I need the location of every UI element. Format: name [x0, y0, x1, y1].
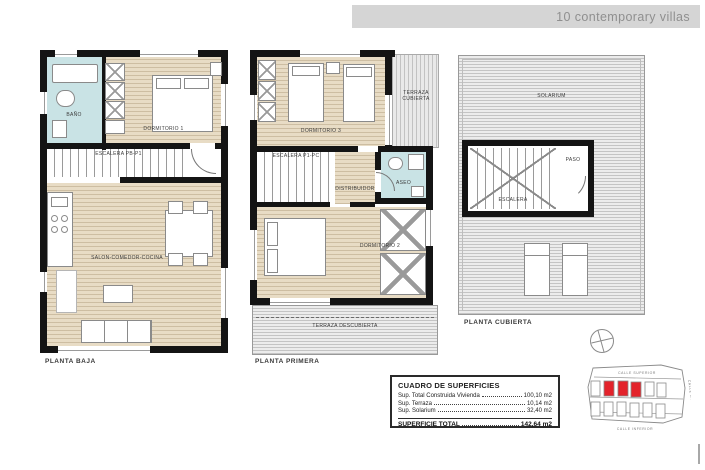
room-label-salon: SALON-COMEDOR-COCINA: [47, 255, 207, 261]
floor-plan-planta-primera: DORMITORIO 3 TERRAZA CUBIERTA ESCALERA P…: [250, 50, 440, 355]
street-label-right: CALLE LATERAL: [687, 380, 691, 415]
room-label-solarium: SOLARIUM: [458, 93, 645, 99]
wardrobe-symbol: [105, 63, 125, 81]
sink-symbol: [52, 120, 67, 138]
kitchen-island-symbol: [56, 270, 77, 313]
room-terraza-descubierta: [252, 305, 438, 355]
pillow-symbol: [346, 67, 372, 77]
wardrobe-symbol: [258, 81, 276, 101]
table-row: Sup. Solarium 32,40 m2: [398, 408, 552, 416]
table-row: Sup. Total Construida Vivienda 100,10 m2: [398, 393, 552, 401]
room-escalera-p1-pc: [257, 152, 335, 202]
window: [221, 84, 228, 126]
dot-leader: [438, 411, 525, 412]
toilet-symbol: [56, 90, 75, 107]
row-label: Sup. Solarium: [398, 408, 436, 416]
plan-label-planta-cubierta: PLANTA CUBIERTA: [464, 319, 532, 326]
row-value: 100,10 m2: [524, 393, 552, 401]
room-label-dormitorio-3: DORMITORIO 3: [257, 128, 385, 134]
window: [40, 272, 47, 292]
surface-table: CUADRO DE SUPERFICIES Sup. Total Constru…: [390, 375, 560, 428]
room-label-terraza-cubierta: TERRAZA CUBIERTA: [396, 90, 436, 103]
room-label-distribuidor: DISTRIBUIDOR: [335, 186, 375, 192]
highlighted-villa-lot: [631, 382, 641, 397]
kitchen-sink-symbol: [51, 197, 68, 207]
pillow-symbol: [156, 78, 181, 89]
room-label-escalera: ESCALERA PB-P1: [47, 151, 190, 157]
window: [221, 268, 228, 318]
door-arc: [191, 149, 216, 174]
nightstand-symbol: [210, 62, 222, 76]
shower-symbol: [408, 154, 424, 170]
window: [140, 50, 198, 57]
room-label-terraza-descubierta: TERRAZA DESCUBIERTA: [310, 323, 380, 329]
floor-plan-planta-cubierta: SOLARIUM PASO ESCALERA: [458, 55, 645, 315]
plan-label-planta-primera: PLANTA PRIMERA: [255, 358, 319, 365]
wardrobe-symbol: [105, 101, 125, 119]
total-value: 142,64 m2: [521, 421, 552, 428]
wardrobe-symbol: [105, 82, 125, 100]
dot-leader: [434, 404, 525, 405]
sofa-symbol: [81, 320, 152, 343]
pillow-symbol: [267, 249, 278, 273]
street-label-bottom: CALLE INFERIOR: [617, 427, 653, 431]
terrace-dashed-line: [256, 317, 434, 318]
row-value: 10,14 m2: [527, 401, 552, 409]
table-row: Sup. Terraza 10,14 m2: [398, 401, 552, 409]
header-bar: 10 contemporary villas: [352, 5, 700, 28]
page-title: 10 contemporary villas: [556, 10, 690, 24]
bathtub-symbol: [52, 64, 98, 83]
room-label-escalera: ESCALERA P1-PC: [257, 153, 335, 159]
sun-lounger-symbol: [524, 243, 550, 296]
room-label-dormitorio-1: DORMITORIO 1: [106, 126, 221, 132]
surface-table-title: CUADRO DE SUPERFICIES: [398, 381, 552, 390]
wardrobe-symbol: [258, 102, 276, 122]
chair-symbol: [193, 201, 208, 214]
room-label-dormitorio-2: DORMITORIO 2: [335, 243, 425, 249]
highlighted-villa-lot: [604, 381, 614, 396]
coffee-table-symbol: [103, 285, 133, 303]
compass-icon: [588, 327, 616, 355]
window: [40, 92, 47, 114]
chair-symbol: [168, 201, 183, 214]
plan-label-planta-baja: PLANTA BAJA: [45, 358, 96, 365]
window: [300, 50, 360, 57]
window: [55, 50, 77, 57]
room-distribuidor: [335, 152, 375, 204]
dining-table-symbol: [165, 210, 213, 257]
window: [58, 346, 150, 353]
window: [426, 210, 433, 246]
page-edge-mark: [698, 444, 700, 464]
highlighted-villa-lot: [618, 381, 628, 396]
row-label: Sup. Total Construida Vivienda: [398, 393, 480, 401]
dot-leader: [482, 396, 522, 397]
window: [270, 298, 330, 305]
table-total-row: SUPERFICIE TOTAL 142,64 m2: [398, 421, 552, 428]
room-label-paso: PASO: [558, 157, 588, 163]
room-label-escalera: ESCALERA: [470, 197, 556, 203]
window: [250, 95, 257, 120]
table-separator: [398, 418, 552, 419]
nightstand-symbol: [326, 62, 340, 74]
window: [250, 230, 257, 280]
total-label: SUPERFICIE TOTAL: [398, 421, 460, 428]
room-label-aseo: ASEO: [381, 180, 426, 186]
street-label-top: CALLE SUPERIOR: [618, 371, 656, 375]
floor-plan-planta-baja: BAÑO DORMITORIO 1 ESCALERA PB-P1 SALON-C…: [40, 50, 228, 353]
wardrobe-symbol: [380, 253, 426, 295]
sink-symbol: [411, 186, 424, 197]
pillow-symbol: [184, 78, 209, 89]
row-value: 32,40 m2: [527, 408, 552, 416]
room-label-bano: BAÑO: [46, 112, 102, 118]
wardrobe-symbol: [258, 60, 276, 80]
pillow-symbol: [267, 222, 278, 246]
sun-lounger-symbol: [562, 243, 588, 296]
toilet-symbol: [388, 157, 403, 170]
window: [385, 95, 392, 145]
site-plan: CALLE SUPERIOR CALLE INFERIOR CALLE LATE…: [585, 362, 691, 442]
row-label: Sup. Terraza: [398, 401, 432, 409]
dot-leader: [462, 425, 519, 426]
pillow-symbol: [292, 66, 320, 76]
brochure-page: 10 contemporary villas: [0, 0, 705, 470]
